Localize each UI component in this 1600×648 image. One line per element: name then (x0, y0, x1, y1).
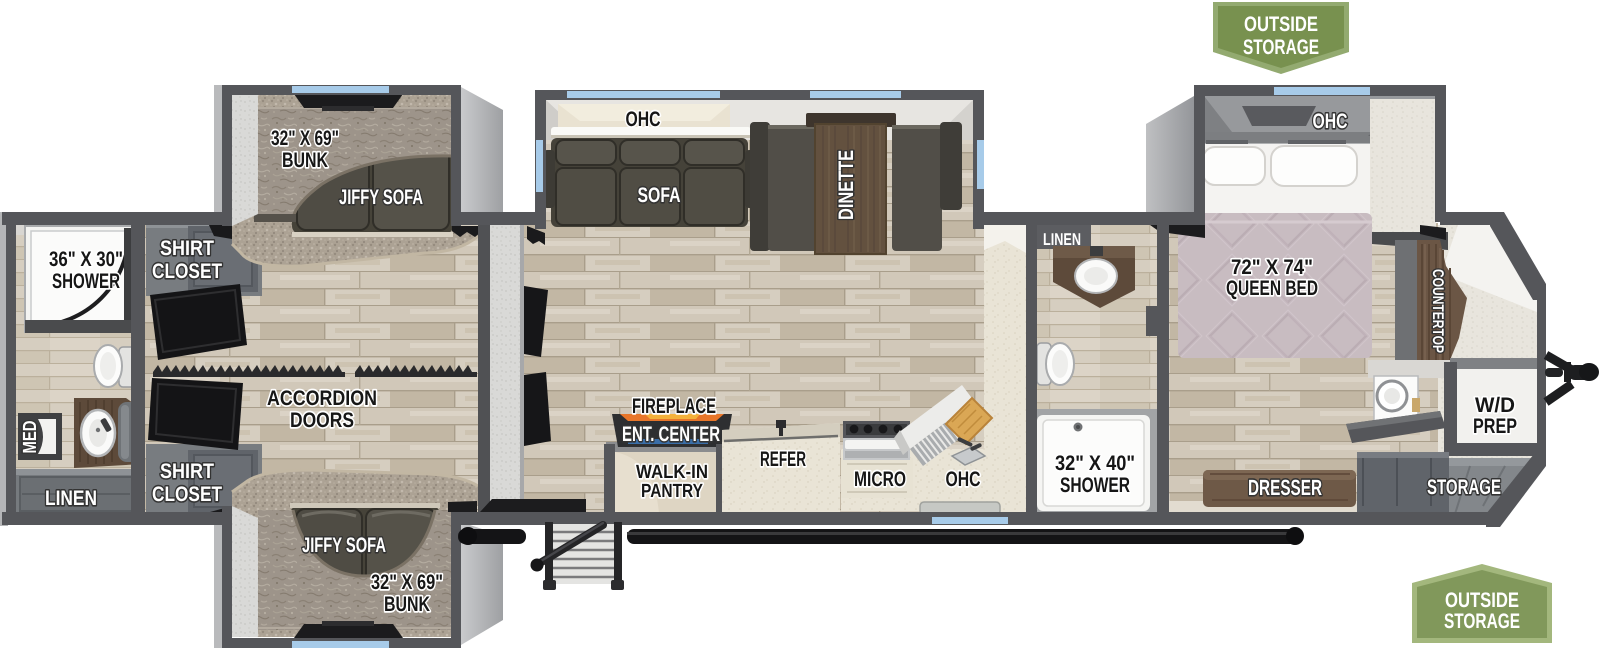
svg-text:STORAGE: STORAGE (1427, 476, 1501, 499)
svg-text:SOFA: SOFA (638, 184, 681, 207)
svg-text:32" X 69": 32" X 69" (371, 571, 443, 594)
svg-text:PREP: PREP (1473, 415, 1517, 438)
svg-text:PANTRY: PANTRY (641, 481, 703, 502)
svg-text:JIFFY SOFA: JIFFY SOFA (302, 534, 386, 557)
svg-text:OUTSIDE: OUTSIDE (1244, 13, 1318, 36)
svg-text:BUNK: BUNK (384, 593, 430, 616)
svg-text:BUNK: BUNK (282, 149, 328, 172)
svg-text:OHC: OHC (1313, 110, 1348, 133)
svg-text:LINEN: LINEN (1043, 230, 1081, 249)
svg-text:STORAGE: STORAGE (1243, 36, 1319, 59)
svg-text:DOORS: DOORS (290, 409, 354, 432)
svg-text:OHC: OHC (626, 108, 661, 131)
svg-text:W/D: W/D (1475, 394, 1515, 417)
svg-text:72" X 74": 72" X 74" (1231, 256, 1313, 279)
svg-text:MED: MED (20, 421, 41, 454)
svg-text:SHIRT: SHIRT (160, 460, 214, 483)
svg-text:SHOWER: SHOWER (52, 270, 120, 293)
svg-text:DRESSER: DRESSER (1248, 475, 1322, 500)
svg-text:SHOWER: SHOWER (1060, 474, 1130, 497)
svg-text:CLOSET: CLOSET (152, 260, 222, 283)
svg-text:ENT. CENTER: ENT. CENTER (622, 423, 720, 446)
svg-text:DINETTE: DINETTE (835, 150, 858, 220)
svg-text:32" X 40": 32" X 40" (1055, 452, 1135, 475)
svg-text:QUEEN BED: QUEEN BED (1226, 277, 1318, 300)
svg-text:SHIRT: SHIRT (160, 237, 214, 260)
svg-text:OUTSIDE: OUTSIDE (1445, 589, 1519, 612)
svg-text:36" X 30": 36" X 30" (49, 248, 123, 271)
svg-text:OHC: OHC (946, 468, 981, 491)
svg-text:STORAGE: STORAGE (1444, 610, 1520, 633)
svg-text:FIREPLACE: FIREPLACE (632, 395, 716, 418)
svg-text:ACCORDION: ACCORDION (267, 387, 377, 410)
svg-text:CLOSET: CLOSET (152, 483, 222, 506)
svg-text:WALK-IN: WALK-IN (636, 462, 708, 483)
svg-text:REFER: REFER (760, 448, 806, 471)
svg-text:MICRO: MICRO (854, 468, 906, 491)
svg-text:LINEN: LINEN (45, 487, 97, 510)
svg-text:JIFFY SOFA: JIFFY SOFA (339, 186, 423, 209)
svg-text:32" X 69": 32" X 69" (271, 127, 339, 150)
svg-text:COUNTERTOP: COUNTERTOP (1429, 269, 1446, 353)
